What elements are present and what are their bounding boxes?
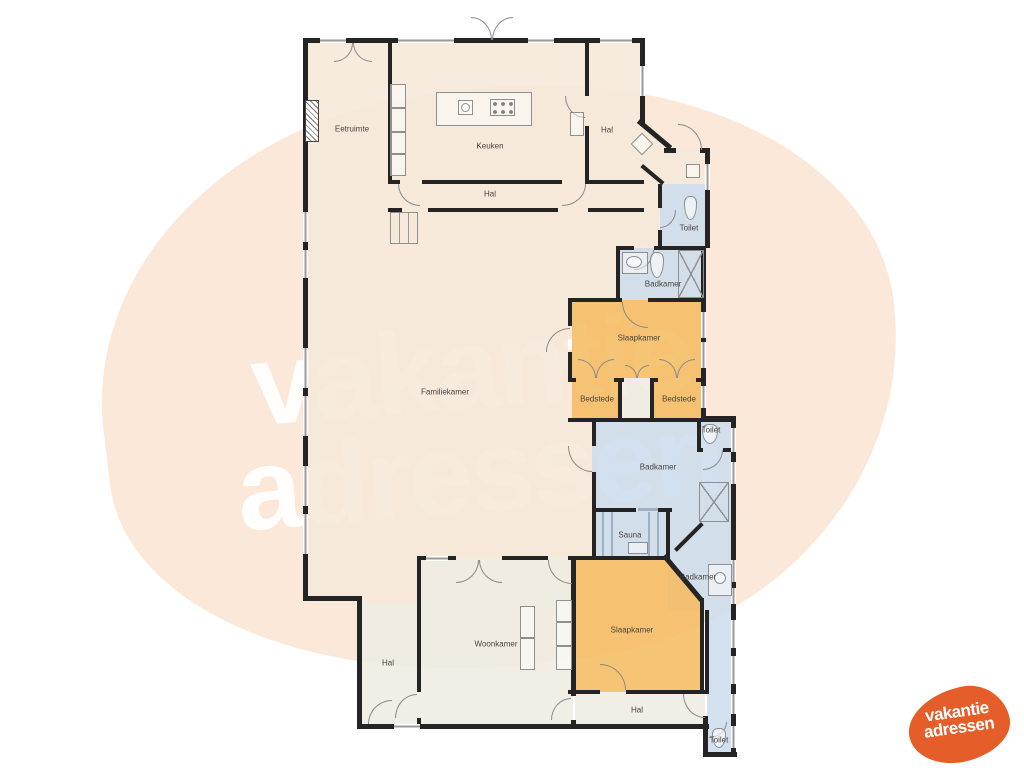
room-label-familiekamer: Familiekamer: [421, 388, 469, 397]
floor-plan: EetruimteKeukenHalHalToiletBadkamerSlaap…: [0, 0, 1024, 768]
room-label-toilet-2: Toilet: [702, 426, 721, 435]
room-label-hal-keuken: Hal: [484, 190, 496, 199]
page: vakantie adressen: [0, 0, 1024, 768]
room-label-sauna: Sauna: [618, 531, 641, 540]
room-label-hal-links: Hal: [382, 659, 394, 668]
room-label-slaapkamer-2: Slaapkamer: [611, 626, 654, 635]
room-label-bedstede-links: Bedstede: [580, 395, 614, 404]
room-label-eetruimte: Eetruimte: [335, 125, 369, 134]
room-label-woonkamer: Woonkamer: [475, 640, 518, 649]
room-label-badkamer-3: Badkamer: [680, 573, 716, 582]
room-label-hal-onder: Hal: [631, 706, 643, 715]
room-label-toilet-3: Toilet: [710, 736, 729, 745]
room-labels: EetruimteKeukenHalHalToiletBadkamerSlaap…: [0, 0, 1024, 768]
room-label-bedstede-rechts: Bedstede: [662, 395, 696, 404]
room-label-badkamer-2: Badkamer: [640, 463, 676, 472]
room-label-slaapkamer-1: Slaapkamer: [618, 334, 661, 343]
room-label-toilet-1: Toilet: [680, 224, 699, 233]
room-label-keuken: Keuken: [476, 142, 503, 151]
room-label-hal-boven: Hal: [601, 126, 613, 135]
room-label-badkamer-1: Badkamer: [645, 280, 681, 289]
